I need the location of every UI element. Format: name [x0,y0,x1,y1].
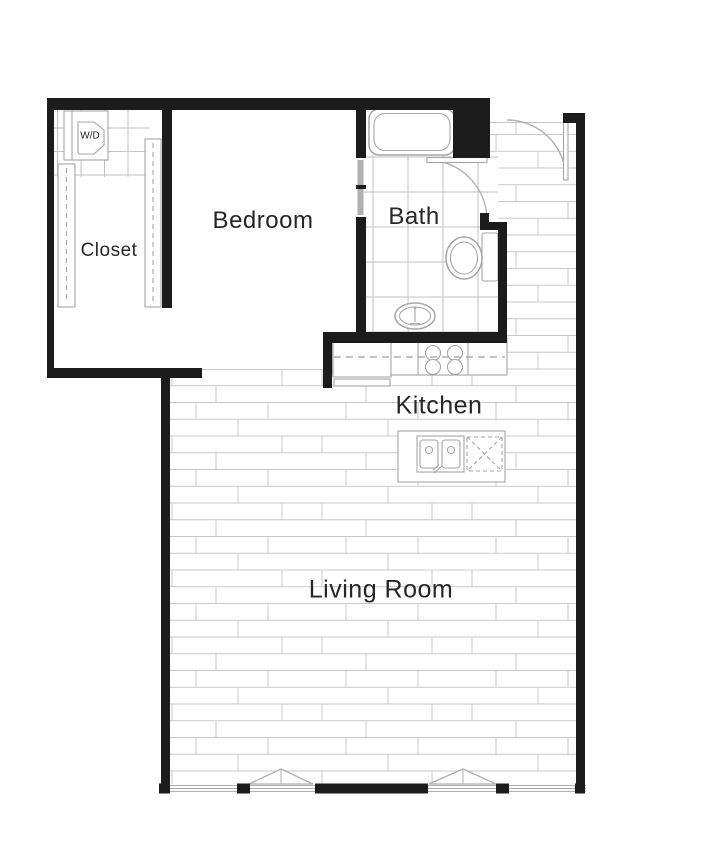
kitchen-label: Kitchen [396,392,483,421]
closet-rod-left [58,164,75,307]
wall-segment [575,784,585,794]
wall-segment [356,217,366,343]
wall-segment [237,784,250,794]
wall-segment [496,784,509,794]
floor-plan: Bedroom Closet Bath Kitchen Living Room … [0,0,708,844]
wall-segment [453,98,490,158]
wall-segment [323,332,507,343]
washer-dryer-label: W/D [80,131,99,142]
bath-label: Bath [388,203,439,231]
closet-rod-right [145,139,161,307]
wall-segment [161,370,170,793]
wall-segment [162,110,172,308]
refrigerator [334,379,390,386]
toilet [446,233,498,281]
stove [418,341,468,375]
wall-segment [356,185,366,189]
wall-segment [356,110,366,158]
pedestal-sink [395,303,435,329]
living-room-label: Living Room [309,576,453,605]
wall-segment [323,332,332,388]
wall-segment [159,784,170,794]
wall-segment [47,98,490,110]
bathtub [369,109,455,155]
wall-segment [576,113,585,793]
wall-segment [47,368,202,378]
floor-plan-drawing [0,0,708,844]
wall-segment [315,784,428,794]
wood-floor-main [168,343,576,784]
kitchen-island [398,431,505,482]
wall-segment [498,222,507,343]
wall-segment [47,98,54,378]
kitchen-sink [417,436,464,473]
closet-label: Closet [81,240,138,262]
bedroom-label: Bedroom [213,207,314,235]
